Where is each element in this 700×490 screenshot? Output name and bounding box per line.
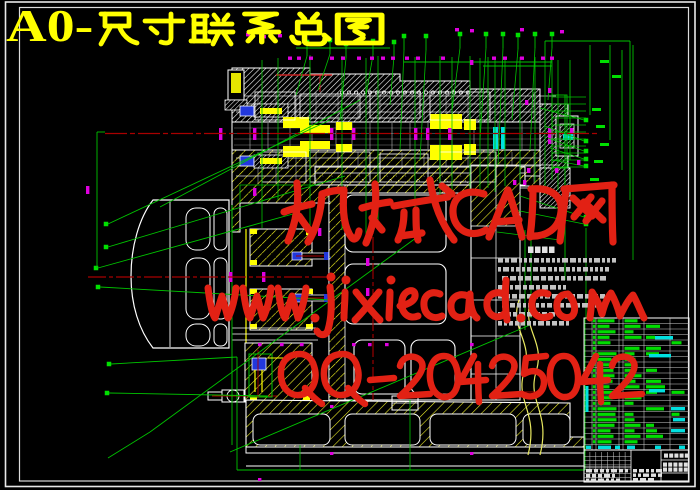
svg-text:A0-: A0- — [6, 1, 93, 52]
